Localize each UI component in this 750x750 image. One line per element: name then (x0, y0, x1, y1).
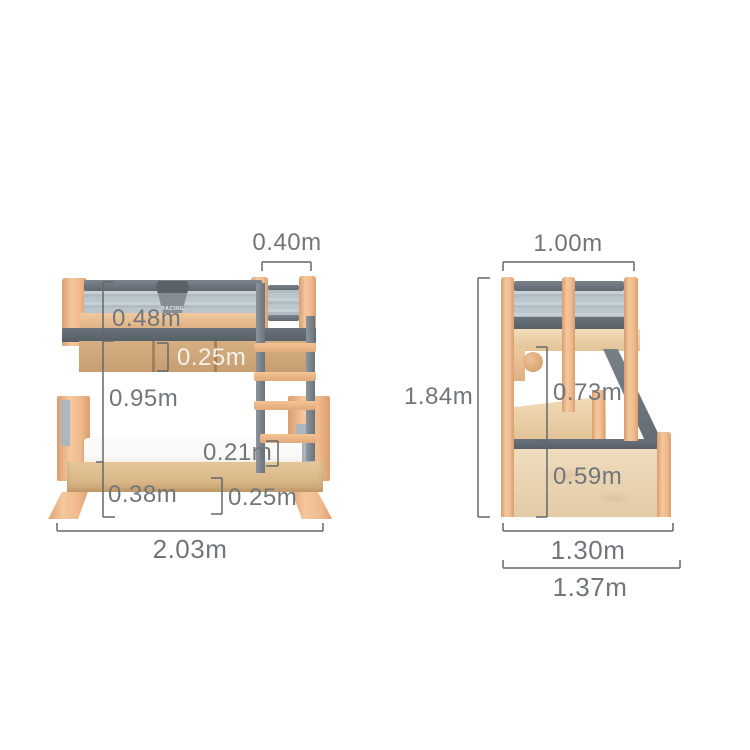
bunk-bed-dimension-diagram: RACING (0, 0, 750, 750)
dim-line-side-clearances (536, 347, 547, 517)
dimension-lines (0, 0, 750, 750)
dim-line-front-frame-panel (157, 343, 168, 371)
front-frame-panel-height-label: 0.25m (177, 346, 246, 370)
dim-line-front-overall-width (57, 523, 323, 531)
front-rung-height-label: 0.21m (203, 441, 272, 465)
side-top-width-label: 1.00m (529, 232, 607, 256)
side-bunk-clearance-label: 0.73m (553, 381, 622, 405)
side-overall-height-label: 1.84m (404, 385, 473, 409)
dim-line-side-overall-height (478, 278, 490, 517)
dim-line-side-bed-depth (503, 523, 673, 531)
side-storage-height-label: 0.59m (553, 465, 622, 489)
dim-line-front-ladder-width (262, 262, 311, 271)
front-underbed-clearance-label: 0.95m (109, 387, 178, 411)
dim-line-front-base-clearance (211, 478, 222, 514)
front-guardrail-height-label: 0.48m (112, 307, 181, 331)
side-overall-depth-label: 1.37m (525, 574, 655, 600)
front-base-height-label: 0.38m (108, 483, 177, 507)
dim-line-side-top-width (503, 262, 634, 271)
front-base-clearance-label: 0.25m (228, 486, 297, 510)
front-overall-width-label: 2.03m (125, 536, 255, 562)
front-ladder-width-label: 0.40m (248, 231, 326, 255)
side-bed-depth-label: 1.30m (523, 537, 653, 563)
